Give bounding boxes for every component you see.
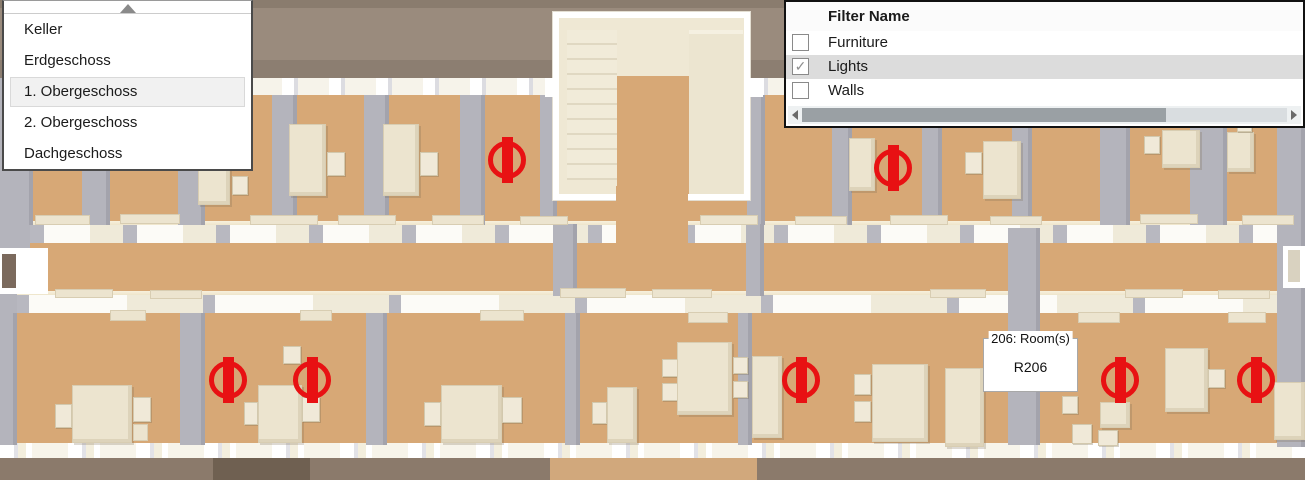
light-icon[interactable] — [293, 361, 331, 399]
furniture-table — [677, 342, 732, 415]
furniture-chair — [733, 357, 748, 374]
filter-scrollbar[interactable] — [788, 106, 1301, 124]
furniture-chair — [327, 152, 345, 176]
furniture-side — [110, 310, 146, 321]
furniture-chair — [283, 346, 301, 364]
scrollbar-track[interactable] — [802, 108, 1287, 122]
stair-treads — [567, 30, 617, 180]
light-icon[interactable] — [1101, 361, 1139, 399]
light-icon[interactable] — [874, 149, 912, 187]
furniture-desk — [72, 385, 132, 443]
stair-sill-right — [749, 78, 763, 97]
wall-pillar — [460, 95, 485, 225]
furniture-side — [150, 290, 202, 299]
furniture-side — [1078, 312, 1120, 323]
furniture-table — [872, 364, 928, 442]
light-icon[interactable] — [209, 361, 247, 399]
furniture-desk — [607, 387, 637, 443]
furniture-side — [688, 312, 728, 323]
furniture-chair — [1062, 396, 1078, 414]
stairwell — [553, 12, 750, 200]
up-triangle-icon — [120, 4, 136, 13]
furniture-chair — [662, 383, 678, 401]
furniture-side — [120, 214, 180, 224]
floor-list: KellerErdgeschoss1. Obergeschoss2. Oberg… — [4, 15, 251, 169]
floor-item[interactable]: 1. Obergeschoss — [10, 77, 245, 107]
filter-list: Furniture✓LightsWalls — [786, 31, 1303, 103]
furniture-side — [520, 216, 568, 225]
furniture-desk — [1162, 130, 1200, 168]
bottom-terrace — [550, 458, 757, 480]
furniture-side — [1125, 289, 1183, 298]
furniture-side — [930, 289, 986, 298]
filter-panel: Filter Name Furniture✓LightsWalls — [784, 0, 1305, 128]
scrollbar-thumb[interactable] — [802, 108, 1166, 122]
furniture-side — [55, 289, 113, 298]
furniture-side — [250, 215, 318, 225]
furniture-side — [133, 424, 148, 441]
furniture-chair — [592, 402, 607, 424]
stair-sill-left — [545, 78, 555, 97]
furniture-desk — [289, 124, 326, 196]
furniture-desk — [1165, 348, 1208, 412]
filter-row[interactable]: Walls — [786, 79, 1303, 103]
furniture-chair — [1072, 424, 1092, 444]
wall-pillar — [0, 313, 17, 445]
wall-pillar — [553, 224, 577, 296]
furniture-side — [432, 215, 484, 225]
furniture-chair — [1208, 369, 1225, 388]
wall-pillar — [746, 224, 764, 296]
left-window — [0, 248, 48, 294]
furniture-side — [560, 288, 626, 298]
furniture-side — [1228, 312, 1266, 323]
filter-row[interactable]: ✓Lights — [786, 55, 1303, 79]
furniture-desk — [1100, 402, 1130, 428]
furniture-chair — [232, 176, 248, 195]
furniture-chair — [854, 374, 871, 395]
furniture-side — [35, 215, 90, 225]
bottom-dark-patch — [213, 458, 310, 480]
filter-label: Walls — [786, 79, 1303, 103]
filter-panel-title: Filter Name — [786, 2, 1303, 31]
checkbox-checked-icon[interactable]: ✓ — [792, 58, 809, 75]
checkbox-icon[interactable] — [792, 34, 809, 51]
furniture-side — [338, 215, 396, 225]
furniture-desk — [1274, 382, 1305, 440]
furniture-side — [652, 289, 712, 298]
furniture-side — [700, 215, 758, 225]
furniture-chair — [244, 402, 258, 425]
wall-pillar — [180, 313, 205, 445]
stair-opening — [617, 76, 689, 194]
filter-label: Furniture — [786, 31, 1303, 55]
room-tooltip: 206: Room(s) R206 — [983, 338, 1078, 392]
furniture-chair — [502, 397, 522, 423]
furniture-side — [1140, 214, 1198, 224]
furniture-side — [300, 310, 332, 321]
furniture-desk — [258, 385, 302, 443]
floor-scroll-up[interactable] — [4, 1, 251, 14]
furniture-side — [890, 215, 948, 225]
furniture-chair — [1098, 430, 1118, 446]
furniture-chair — [854, 401, 871, 422]
furniture-desk — [945, 368, 984, 447]
furniture-desk — [983, 141, 1021, 199]
furniture-desk — [1227, 132, 1254, 172]
scroll-right-arrow[interactable] — [1287, 106, 1301, 124]
furniture-chair — [1144, 136, 1160, 154]
floorplan-3d-view[interactable]: 206: Room(s) R206 KellerErdgeschoss1. Ob… — [0, 0, 1305, 480]
floor-item[interactable]: 2. Obergeschoss — [4, 108, 251, 138]
furniture-chair — [133, 397, 151, 422]
corridor-wall-lower — [17, 295, 1277, 313]
light-icon[interactable] — [782, 361, 820, 399]
floor-item[interactable]: Erdgeschoss — [4, 46, 251, 76]
furniture-chair — [965, 152, 982, 174]
furniture-desk — [752, 356, 782, 438]
furniture-side — [795, 216, 847, 225]
furniture-chair — [662, 359, 678, 377]
furniture-side — [1218, 290, 1270, 299]
furniture-chair — [424, 402, 441, 426]
floor-item[interactable]: Dachgeschoss — [4, 139, 251, 169]
furniture-chair — [420, 152, 438, 176]
stair-landing — [689, 30, 743, 194]
furniture-desk — [383, 124, 419, 196]
light-icon[interactable] — [488, 141, 526, 179]
wall-pillar — [565, 313, 580, 445]
furniture-side — [1242, 215, 1294, 225]
room-tooltip-value: R206 — [984, 359, 1077, 375]
scroll-left-arrow[interactable] — [788, 106, 802, 124]
right-window — [1283, 246, 1305, 288]
filter-row[interactable]: Furniture — [786, 31, 1303, 55]
wall-pillar — [738, 313, 752, 445]
furniture-chair — [733, 381, 748, 398]
floor-selector: KellerErdgeschoss1. Obergeschoss2. Oberg… — [2, 0, 253, 171]
furniture-chair — [55, 404, 72, 428]
furniture-side — [990, 216, 1042, 225]
checkbox-icon[interactable] — [792, 82, 809, 99]
room-tooltip-title: 206: Room(s) — [988, 331, 1073, 346]
floor-item[interactable]: Keller — [4, 15, 251, 45]
stairwell-door-gap — [616, 186, 688, 244]
furniture-desk — [849, 138, 875, 191]
filter-label: Lights — [786, 55, 1303, 79]
furniture-desk — [441, 385, 502, 443]
wall-pillar — [366, 313, 387, 445]
light-icon[interactable] — [1237, 361, 1275, 399]
furniture-side — [480, 310, 524, 321]
